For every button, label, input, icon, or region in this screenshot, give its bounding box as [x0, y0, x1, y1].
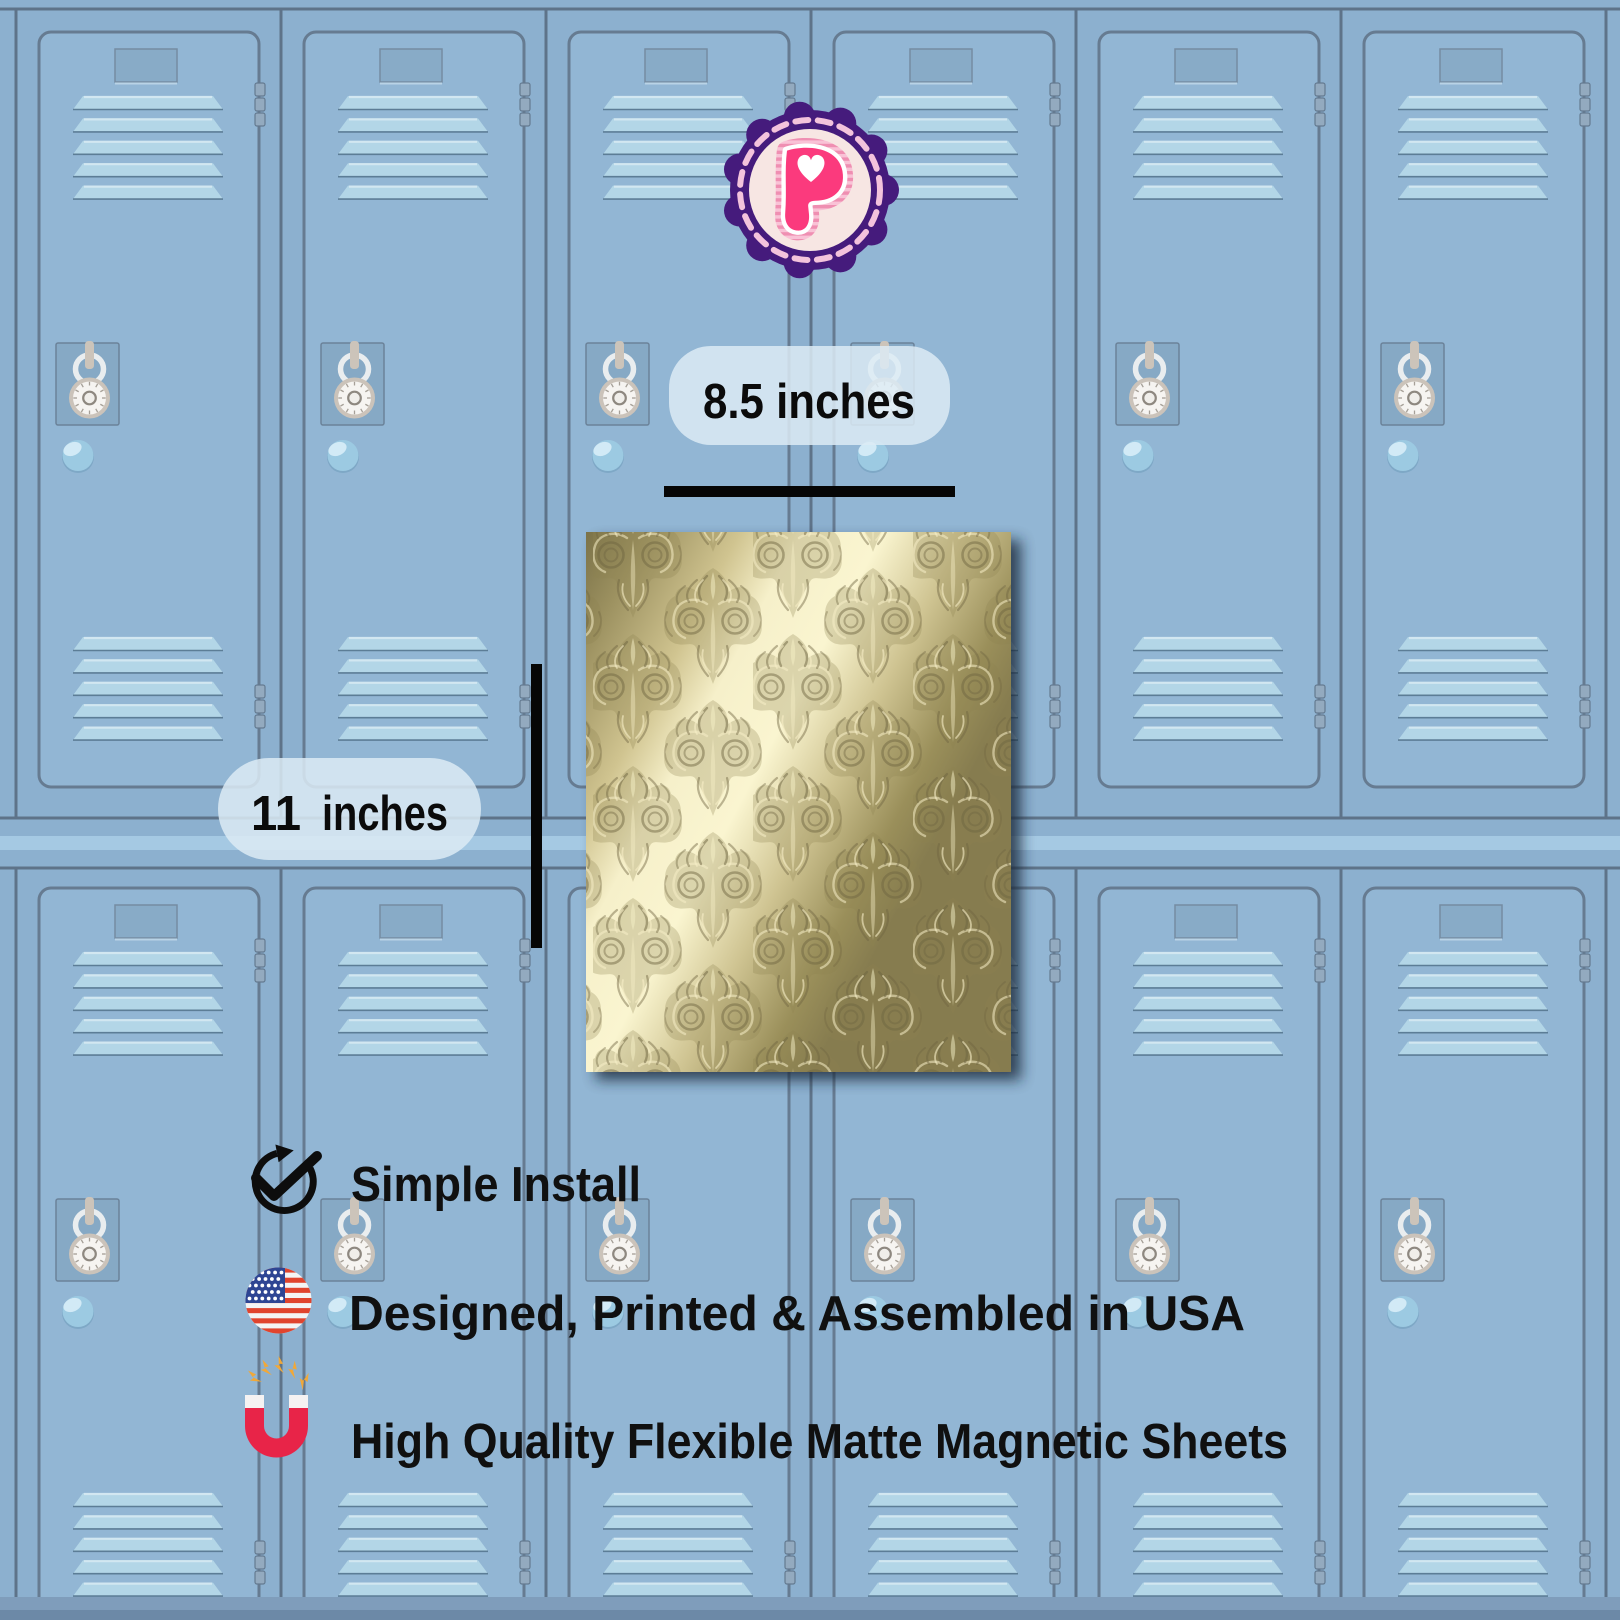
svg-text:High Quality Flexible Matte Ma: High Quality Flexible Matte Magnetic She…	[351, 1415, 1288, 1469]
svg-text:Simple Install: Simple Install	[351, 1158, 641, 1212]
svg-text:inches: inches	[322, 787, 448, 841]
svg-text:11: 11	[251, 787, 301, 841]
svg-text:Designed, Printed & Assembled: Designed, Printed & Assembled in USA	[349, 1287, 1245, 1341]
svg-text:8.5 inches: 8.5 inches	[703, 375, 915, 429]
